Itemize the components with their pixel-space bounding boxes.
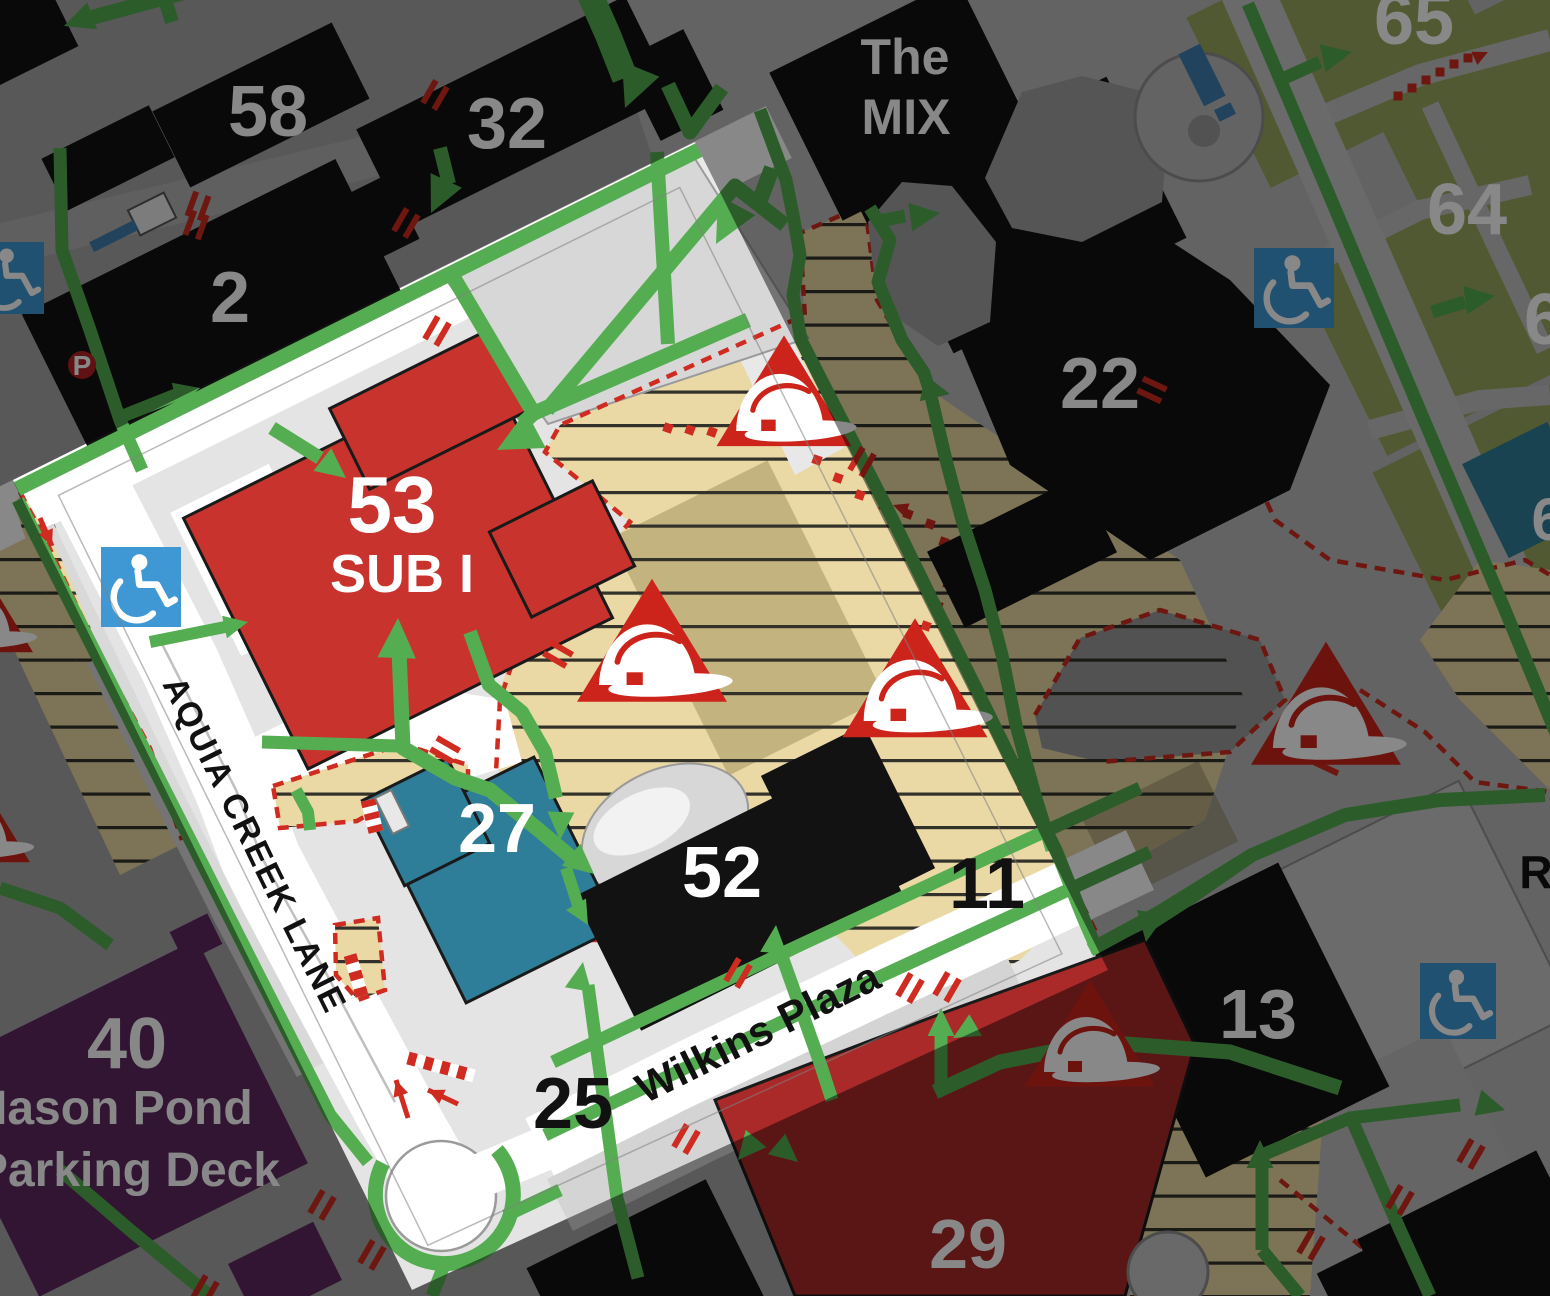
svg-text:52: 52 [682,833,762,913]
svg-text:25: 25 [533,1064,613,1144]
svg-text:53: 53 [348,460,437,549]
svg-text:27: 27 [458,789,536,867]
svg-text:SUB I: SUB I [330,544,474,604]
